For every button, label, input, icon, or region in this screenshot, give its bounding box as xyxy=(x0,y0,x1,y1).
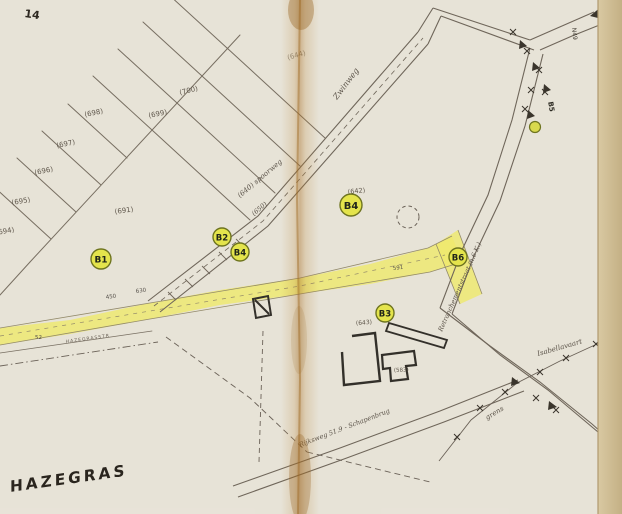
corner-mark: 14 xyxy=(24,7,41,22)
marker-b3: B3 xyxy=(376,304,394,322)
marker-label: B6 xyxy=(452,254,464,264)
marker-label: B3 xyxy=(379,310,391,320)
marker-label: B1 xyxy=(94,256,107,266)
parcel-label: (643) xyxy=(356,319,373,327)
page-edge xyxy=(598,0,622,514)
marker-circle xyxy=(530,122,541,133)
road-label-route-number: N49 xyxy=(570,27,578,40)
marker-label: B4 xyxy=(344,201,359,212)
marker-b1: B1 xyxy=(91,249,111,269)
marker-b4-small: B4 xyxy=(231,243,249,261)
marker-b2: B2 xyxy=(213,228,231,246)
map-canvas: (700) (699) (698) (697) (696) (695) (694… xyxy=(0,0,622,514)
scanned-map-page: (700) (699) (698) (697) (696) (695) (694… xyxy=(0,0,622,514)
marker-label: B2 xyxy=(216,234,228,244)
fold-stain-mid xyxy=(291,306,307,374)
parcel-label: (583) xyxy=(394,367,409,374)
page-edge-band xyxy=(598,0,622,514)
marker-b4: B4 xyxy=(340,194,362,216)
marker-label: B4 xyxy=(234,249,246,259)
measurement: 591 xyxy=(393,265,404,272)
measurement: 52 xyxy=(35,335,42,341)
marker-b6: B6 xyxy=(449,248,467,266)
fold-stain xyxy=(281,0,319,514)
